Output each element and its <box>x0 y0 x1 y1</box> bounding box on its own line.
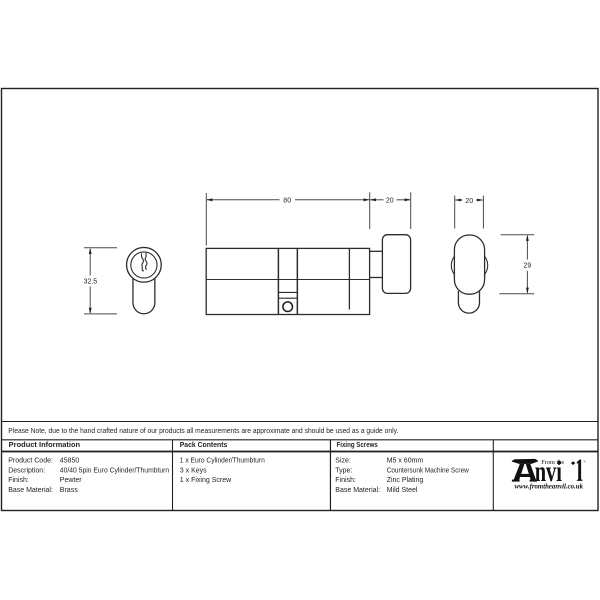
svg-text:www.fromtheanvil.co.uk: www.fromtheanvil.co.uk <box>515 483 584 491</box>
svg-text:40/40 5pin Euro Cylinder/Thumb: 40/40 5pin Euro Cylinder/Thumbturn <box>60 467 170 474</box>
svg-text:M5 x 60mm: M5 x 60mm <box>387 457 424 464</box>
svg-text:Please Note, due to the hand c: Please Note, due to the hand crafted nat… <box>8 428 398 435</box>
svg-text:Mild Steel: Mild Steel <box>387 487 418 494</box>
svg-text:Product Information: Product Information <box>9 442 80 449</box>
svg-text:32.5: 32.5 <box>84 279 98 286</box>
svg-text:Pewter: Pewter <box>60 477 82 484</box>
svg-text:Base Material:: Base Material: <box>335 487 380 494</box>
svg-text:Fixing Screws: Fixing Screws <box>337 442 378 449</box>
svg-text:45850: 45850 <box>60 457 80 464</box>
svg-text:Description:: Description: <box>8 467 45 474</box>
svg-text:Zinc Plating: Zinc Plating <box>387 477 424 484</box>
svg-text:1 x Euro Cylinder/Thumbturn: 1 x Euro Cylinder/Thumbturn <box>180 457 265 464</box>
svg-text:80: 80 <box>283 198 291 205</box>
svg-text:Base Material:: Base Material: <box>8 487 53 494</box>
svg-text:Finish:: Finish: <box>8 477 29 484</box>
svg-text:Countersunk Machine Screw: Countersunk Machine Screw <box>387 467 470 474</box>
svg-text:Brass: Brass <box>60 487 78 494</box>
svg-text:Pack Contents: Pack Contents <box>180 442 228 449</box>
svg-text:20: 20 <box>386 198 394 205</box>
svg-text:Type:: Type: <box>335 467 352 474</box>
svg-text:3 x Keys: 3 x Keys <box>180 467 207 474</box>
svg-text:20: 20 <box>465 198 473 205</box>
svg-text:Finish:: Finish: <box>335 477 356 484</box>
svg-text:29: 29 <box>524 263 532 270</box>
svg-text:®: ® <box>583 459 586 464</box>
svg-text:Product Code:: Product Code: <box>8 457 53 464</box>
svg-text:1 x Fixing Screw: 1 x Fixing Screw <box>180 477 232 484</box>
svg-text:Size:: Size: <box>335 457 351 464</box>
